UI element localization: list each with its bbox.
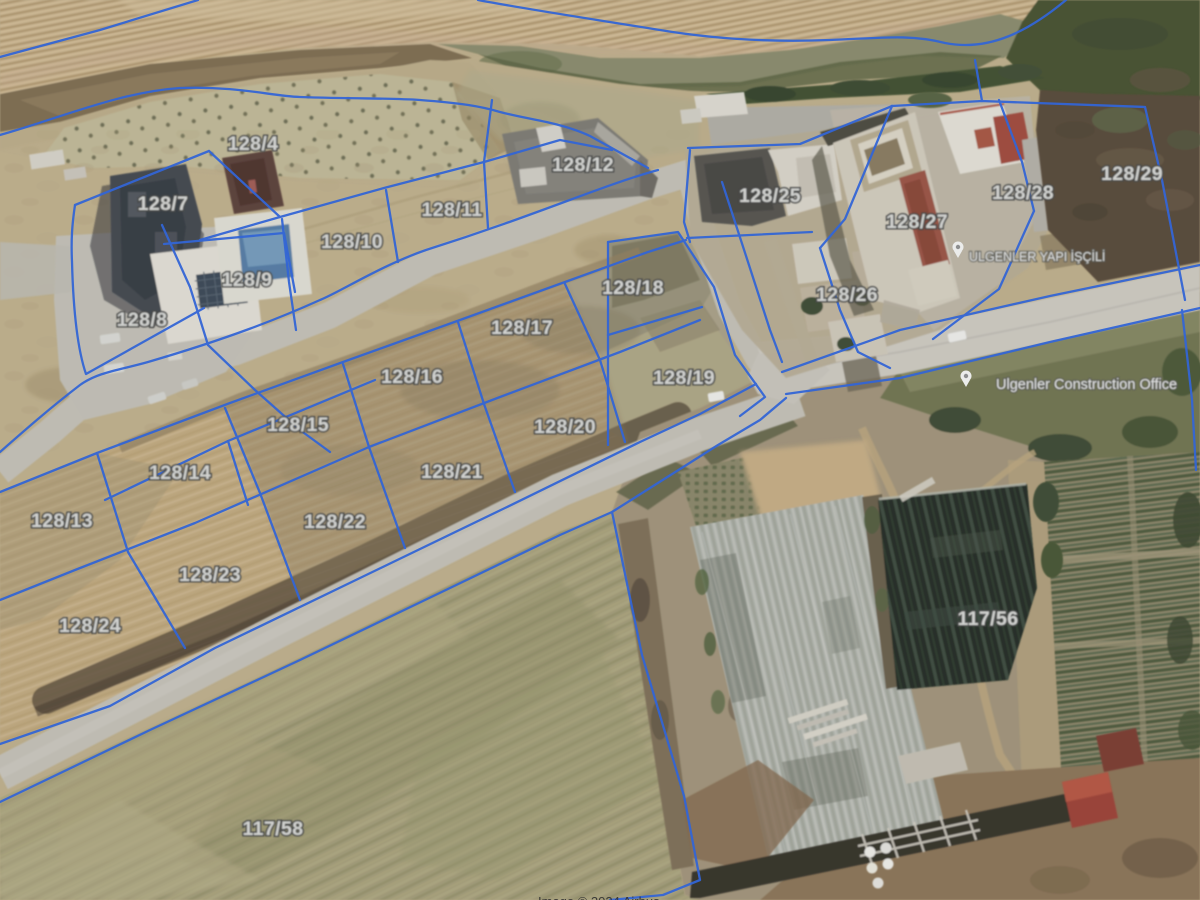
svg-text:Image © 2024 Airbus: Image © 2024 Airbus — [538, 894, 660, 900]
